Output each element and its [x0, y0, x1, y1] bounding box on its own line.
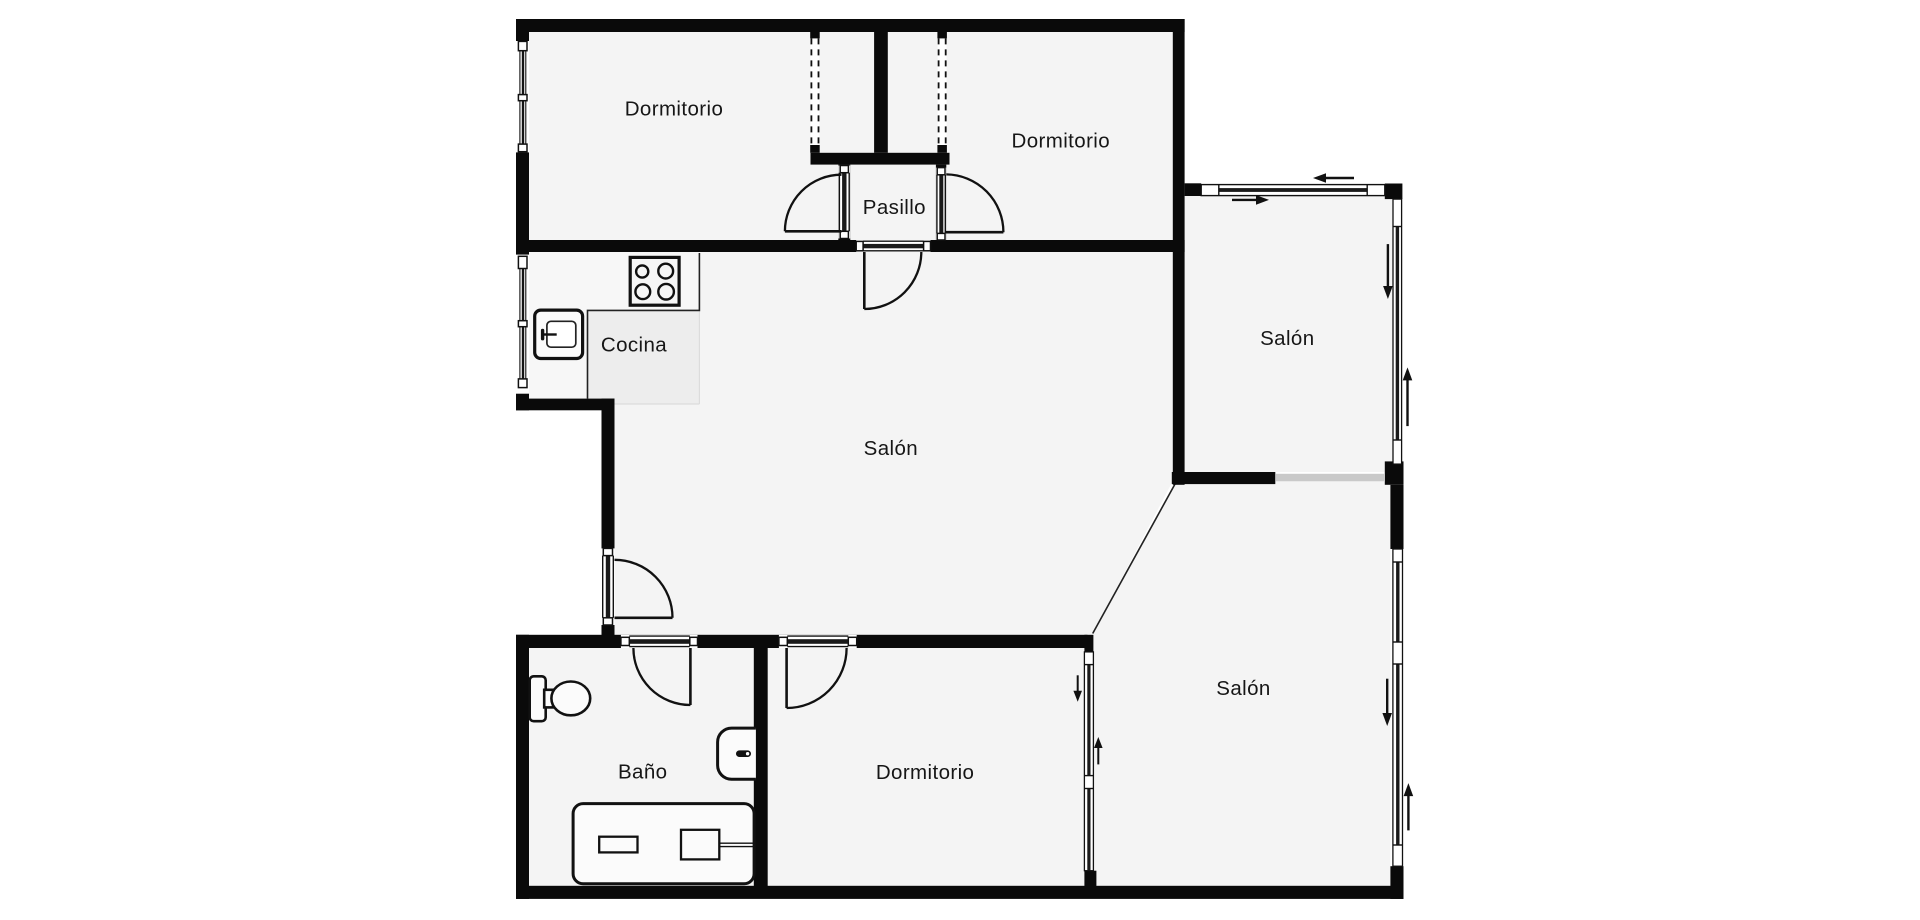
svg-text:Pasillo: Pasillo	[863, 196, 926, 219]
svg-text:Baño: Baño	[618, 761, 667, 784]
svg-text:Salón: Salón	[1260, 327, 1314, 350]
svg-text:Salón: Salón	[1216, 677, 1270, 700]
svg-text:Cocina: Cocina	[601, 334, 667, 357]
svg-text:Salón: Salón	[864, 437, 918, 460]
svg-text:Dormitorio: Dormitorio	[625, 98, 724, 121]
svg-text:Dormitorio: Dormitorio	[876, 761, 975, 784]
svg-text:Dormitorio: Dormitorio	[1012, 130, 1111, 153]
